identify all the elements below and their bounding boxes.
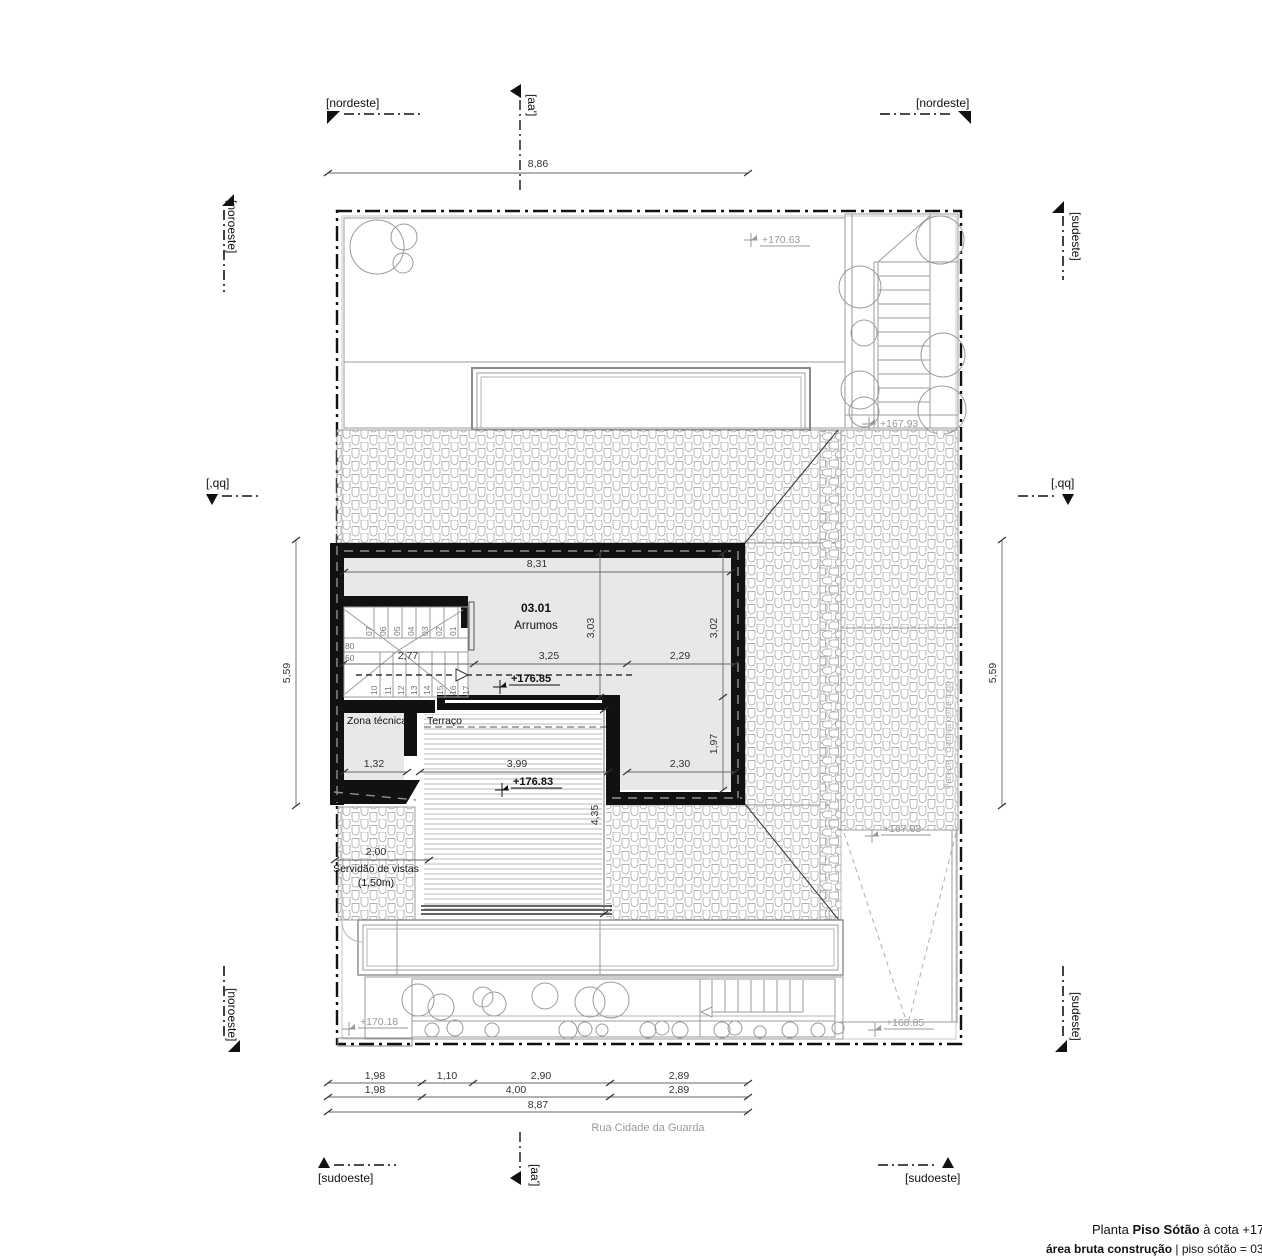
room-number: 03.01 (521, 601, 551, 615)
sheet-subtitle: área bruta construção | piso sótão = 03 (1046, 1242, 1262, 1256)
sheet-title: Planta Piso Sótão à cota +178 (1092, 1222, 1262, 1237)
svg-text:1,10: 1,10 (437, 1070, 458, 1082)
shrub-icon (918, 386, 966, 434)
svg-text:14: 14 (422, 685, 432, 695)
shrub-icon (916, 216, 964, 264)
firewall-label: Parede | Cortina corta-fogo (943, 681, 953, 789)
svg-text:2,90: 2,90 (531, 1070, 552, 1082)
svg-text:3,25: 3,25 (539, 650, 560, 662)
lower-terrace-edge (342, 920, 843, 975)
svg-text:04: 04 (406, 626, 416, 636)
svg-text:01: 01 (448, 626, 458, 636)
shrub-icon (841, 371, 879, 409)
nordeste-top-left-label: [nordeste] (326, 96, 379, 110)
level-170-63: +170.63 (762, 234, 800, 246)
svg-text:1,32: 1,32 (364, 758, 385, 770)
level-167-93-mid: +167.93 (883, 823, 921, 835)
zona-tecnica-label: Zona técnica (347, 715, 407, 727)
svg-text:05: 05 (392, 626, 402, 636)
dim-side-right: 5,59 (987, 663, 999, 684)
upper-garden (344, 218, 845, 428)
svg-text:03: 03 (420, 626, 430, 636)
svg-text:11: 11 (383, 686, 393, 695)
svg-text:15: 15 (435, 685, 445, 695)
svg-text:02: 02 (434, 626, 444, 636)
exterior-stair-north (839, 214, 966, 434)
svg-text:1,97: 1,97 (708, 734, 720, 755)
room-name: Arrumos (514, 620, 558, 632)
svg-text:2,77: 2,77 (398, 650, 419, 662)
level-168-85: +168.85 (886, 1017, 924, 1029)
floor-plan-drawing: Parede | Cortina corta-fogo (0, 0, 1262, 1256)
dim-side-left: 5,59 (281, 663, 293, 684)
svg-text:13: 13 (409, 685, 419, 695)
svg-text:3,03: 3,03 (585, 618, 597, 639)
svg-text:2,89: 2,89 (669, 1070, 690, 1082)
sudoeste-bottom-left-label: [sudoeste] (318, 1171, 373, 1185)
section-aa-bottom-label: [aa'] (528, 1164, 542, 1186)
level-176-83: +176.83 (513, 776, 553, 788)
dim-bottom-total: 8,87 (528, 1099, 549, 1111)
svg-text:3,02: 3,02 (708, 618, 720, 639)
tree-icon (393, 253, 413, 273)
svg-text:16: 16 (448, 685, 458, 695)
svg-text:1,98: 1,98 (365, 1070, 386, 1082)
noroeste-lower-label: [noroeste] (225, 988, 239, 1041)
dim-top: 8,86 (528, 158, 549, 170)
section-bb-right-label: [,qq] (1051, 476, 1074, 490)
svg-text:2,29: 2,29 (670, 650, 691, 662)
svg-text:1,98: 1,98 (365, 1084, 386, 1096)
svg-text:06: 06 (378, 626, 388, 636)
level-167-93-top: +167.93 (880, 418, 918, 430)
svg-text:07: 07 (364, 626, 374, 636)
svg-text:10: 10 (369, 685, 379, 695)
roof-firewall-strip (841, 430, 958, 830)
level-176-85: +176.85 (511, 673, 551, 685)
svg-text:12: 12 (396, 685, 406, 695)
svg-text:3,99: 3,99 (507, 758, 528, 770)
skylight (472, 368, 810, 430)
servidao-label-2: (1,50m) (358, 877, 394, 889)
svg-text:80: 80 (345, 641, 355, 651)
street-name: Rua Cidade da Guarda (591, 1122, 705, 1134)
bushes (402, 982, 844, 1039)
svg-text:4,35: 4,35 (589, 805, 601, 826)
svg-text:4,00: 4,00 (506, 1084, 527, 1096)
shrub-icon (851, 320, 877, 346)
svg-text:17: 17 (461, 685, 471, 695)
nordeste-top-right-label: [nordeste] (916, 96, 969, 110)
section-bb-left-label: [,qq] (206, 476, 229, 490)
street-garden (338, 977, 844, 1046)
svg-text:2,00: 2,00 (366, 846, 387, 858)
sudoeste-bottom-right-label: [sudoeste] (905, 1171, 960, 1185)
sudeste-upper-label: [sudeste] (1069, 212, 1083, 261)
level-170-18: +170.18 (360, 1016, 398, 1028)
svg-text:2,30: 2,30 (670, 758, 691, 770)
floor-plan-sheet: Parede | Cortina corta-fogo (0, 0, 1262, 1256)
dim-room-width: 8,31 (527, 558, 548, 570)
driveway-ramp (838, 830, 958, 1022)
noroeste-upper-label: [noroeste] (225, 200, 239, 253)
svg-text:2,89: 2,89 (669, 1084, 690, 1096)
terraco-label: Terraço (427, 715, 462, 727)
sudeste-lower-label: [sudeste] (1069, 992, 1083, 1041)
servidao-label-1: Servidão de vistas (333, 863, 419, 875)
section-aa-top-label: [aa'] (525, 94, 539, 116)
